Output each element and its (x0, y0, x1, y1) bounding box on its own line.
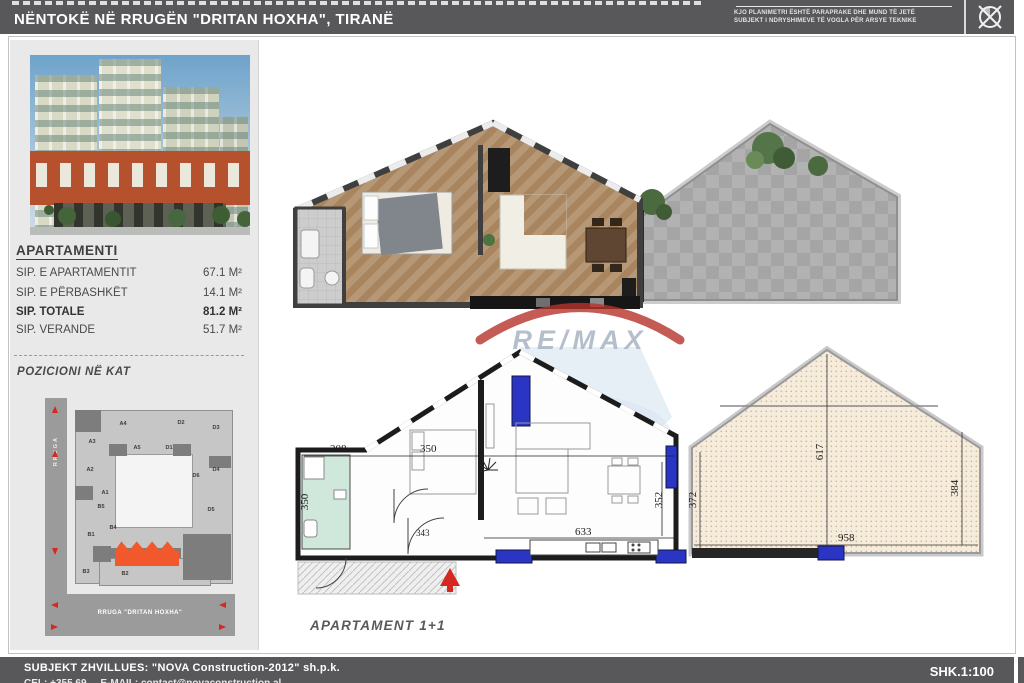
building-photo (30, 55, 250, 235)
traffic-arrow-left (51, 602, 58, 608)
shower (301, 230, 319, 258)
column (496, 550, 532, 563)
unit-label: B1 (87, 532, 94, 538)
developer-line: SUBJEKT ZHVILLUES: "NOVA Construction-20… (24, 662, 340, 674)
core-block (93, 546, 111, 562)
unit-label: D4 (212, 467, 219, 473)
header-vertical-divider (964, 0, 966, 34)
apartment-info-heading: APARTAMENTI (16, 243, 118, 260)
info-value: 67.1 M² (203, 267, 242, 279)
traffic-arrow-up (52, 450, 58, 457)
unit-label: B3 (82, 569, 89, 575)
rendered-floor-plan (290, 110, 980, 320)
unit-label: D2 (177, 420, 184, 426)
dashed-separator (14, 355, 244, 356)
info-row-total: SIP. TOTALE 81.2 M² (16, 306, 244, 322)
traffic-arrow-right (51, 624, 58, 630)
traffic-arrow-right (219, 624, 226, 630)
traffic-arrow-left (219, 602, 226, 608)
core-block (173, 444, 191, 456)
apartment-outline (296, 123, 640, 305)
info-value: 81.2 M² (203, 306, 242, 318)
truncated-text-line (12, 1, 702, 5)
ground-floor (54, 203, 226, 229)
contact-line-truncated: CEL: +355 69 ... E-MAIL: contact@novacon… (24, 678, 281, 683)
unit-label: D5 (207, 507, 214, 513)
scale-label: SHK.1:100 (930, 664, 994, 679)
info-row: SIP. E PËRBASHKËT 14.1 M² (16, 287, 244, 303)
core-block (75, 486, 93, 500)
info-row: SIP. E APARTAMENTIT 67.1 M² (16, 267, 244, 283)
header-divider (736, 6, 952, 7)
info-value: 14.1 M² (203, 287, 242, 299)
sink (325, 271, 339, 285)
footer-edge (1018, 657, 1024, 683)
column (818, 546, 844, 560)
stove-render (536, 298, 550, 307)
street (30, 227, 250, 235)
street-vertical: RRUGA (45, 398, 67, 600)
column (666, 446, 677, 488)
dim-617: 617 (814, 443, 826, 460)
dim-352: 352 (653, 492, 665, 509)
traffic-arrow-down (52, 548, 58, 555)
compass-icon (976, 3, 1004, 31)
column (512, 376, 530, 426)
unit-label: A3 (88, 439, 95, 445)
sink-render (590, 298, 604, 307)
plant-render (483, 234, 495, 246)
toilet-plan (304, 520, 317, 537)
unit-label: B2 (121, 571, 128, 577)
floor-position-heading: POZICIONI NË KAT (17, 366, 131, 378)
disclaimer-line2: SUBJEKT I NDRYSHIMEVE TË VOGLA PËR ARSYE… (734, 17, 952, 25)
column (656, 550, 686, 563)
info-label: SIP. E APARTAMENTIT (16, 267, 137, 279)
core-block (109, 444, 127, 456)
page-title: NËNTOKË NË RRUGËN "DRITAN HOXHA", TIRANË (14, 11, 394, 28)
kitchen-counter-render (470, 296, 640, 309)
unit-label: D3 (212, 425, 219, 431)
technical-floor-plan: 372 617 384 958 (290, 340, 990, 600)
veranda-plan (692, 350, 980, 553)
plan-sheet: NËNTOKË NË RRUGËN "DRITAN HOXHA", TIRANË… (0, 0, 1024, 683)
kitchen-plan (530, 540, 658, 555)
unit-label: B4 (109, 525, 116, 531)
unit-label: A4 (119, 421, 126, 427)
veranda-parapet (692, 548, 832, 558)
dim-208: 208 (330, 443, 347, 455)
unit-label: A5 (133, 445, 140, 451)
partition-wall (478, 145, 483, 255)
wardrobe (488, 148, 510, 192)
dim-372: 372 (687, 492, 699, 509)
street-horizontal: RRUGA "DRITAN HOXHA" (45, 594, 235, 636)
street-horizontal-label: RRUGA "DRITAN HOXHA" (45, 610, 235, 616)
dim-633: 633 (575, 526, 592, 538)
traffic-arrow-up (52, 406, 58, 413)
header-bar: NËNTOKË NË RRUGËN "DRITAN HOXHA", TIRANË… (0, 0, 1014, 34)
unit-label: D6 (192, 473, 199, 479)
info-row: SIP. VERANDE 51.7 M² (16, 324, 244, 340)
bed-render (362, 192, 452, 255)
dim-958: 958 (838, 532, 855, 544)
footer-bar: SUBJEKT ZHVILLUES: "NOVA Construction-20… (0, 657, 1014, 683)
floor-key-plan: RRUGA RRUGA "DRITAN HOXHA" A4 D2 D3 A3 A… (35, 398, 240, 648)
sink-plan (334, 490, 346, 499)
unit-label: A2 (86, 467, 93, 473)
apartment-plan-outline (298, 352, 676, 558)
toilet (300, 268, 314, 288)
info-label: SIP. TOTALE (16, 306, 84, 318)
shower-plan (304, 457, 324, 479)
dim-343: 343 (416, 528, 430, 538)
core-block (183, 534, 231, 580)
info-label: SIP. E PËRBASHKËT (16, 287, 128, 299)
unit-label: B5 (97, 504, 104, 510)
dim-350-bed: 350 (420, 443, 437, 455)
dim-350-bath: 350 (299, 493, 311, 510)
disclaimer: KJO PLANIMETRI ËSHTË PARAPRAKE DHE MUND … (734, 9, 952, 25)
core-block (75, 410, 101, 432)
dim-384: 384 (949, 479, 961, 496)
trees (44, 205, 54, 215)
apartment-type-label: APARTAMENT 1+1 (310, 618, 446, 633)
disclaimer-line1: KJO PLANIMETRI ËSHTË PARAPRAKE DHE MUND … (734, 9, 952, 17)
courtyard (115, 454, 193, 528)
podium-building (30, 151, 250, 205)
sofa-cutout (524, 195, 566, 235)
info-label: SIP. VERANDE (16, 324, 95, 336)
unit-label: D1 (165, 445, 172, 451)
partition-wall-plan (478, 380, 484, 520)
info-value: 51.7 M² (203, 324, 242, 336)
unit-label: A1 (101, 490, 108, 496)
entry-pad (298, 562, 456, 594)
podium-windows (36, 163, 244, 187)
